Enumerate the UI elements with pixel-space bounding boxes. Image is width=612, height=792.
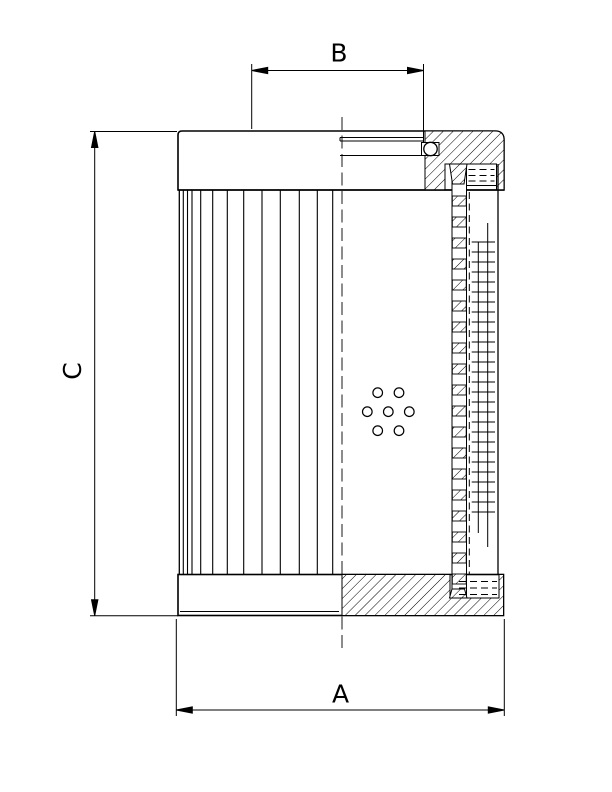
core-hatch-square — [452, 364, 466, 374]
core-hatch-square — [452, 259, 466, 269]
support-core-section — [450, 164, 499, 598]
core-top-anchor — [450, 164, 468, 184]
dimension-a-label: A — [332, 680, 349, 709]
core-hatch-square — [452, 553, 466, 563]
mesh-rungs — [472, 242, 495, 512]
perforation-hole — [394, 388, 404, 398]
core-hatch-square — [452, 532, 466, 542]
o-ring-icon — [424, 142, 437, 155]
core-hatch-square — [452, 322, 466, 332]
technical-drawing-page: B C A — [0, 0, 612, 792]
perforated-core-strip — [452, 164, 467, 596]
dim-b-arrow-right — [408, 67, 424, 73]
core-bottom-anchor — [450, 589, 468, 598]
dimension-c: C — [58, 132, 178, 616]
dimension-b: B — [252, 39, 424, 143]
core-hatch-square — [452, 301, 466, 311]
core-hatch-square — [452, 217, 466, 227]
dim-c-arrow-top — [92, 132, 98, 148]
core-hatch-square — [452, 427, 466, 437]
core-hatch-square — [452, 448, 466, 458]
perforation-hole — [384, 407, 394, 417]
dimension-c-label: C — [58, 362, 87, 379]
filter-element-drawing: B C A — [0, 0, 612, 792]
dim-c-arrow-bottom — [92, 600, 98, 616]
perforation-holes — [363, 388, 415, 436]
core-hatch-square — [452, 490, 466, 500]
pleated-filter-media — [179, 191, 332, 575]
top-media-bond — [467, 164, 497, 186]
dim-b-arrow-left — [252, 67, 268, 73]
core-hatch-square — [452, 238, 466, 248]
wire-mesh — [472, 164, 498, 575]
core-hatch-square — [452, 280, 466, 290]
perforation-hole — [373, 388, 383, 398]
perforation-hole — [363, 407, 373, 417]
perforation-hole — [373, 426, 383, 436]
perforation-hole — [405, 407, 415, 417]
dimension-a: A — [176, 619, 504, 716]
core-hatch-square — [452, 406, 466, 416]
core-hatch-square — [452, 574, 466, 584]
o-ring-seal — [422, 142, 440, 155]
core-hatch-square — [452, 469, 466, 479]
core-hatch-square — [452, 511, 466, 521]
perforation-hole — [394, 426, 404, 436]
dim-a-arrow-left — [176, 707, 192, 713]
dimension-b-label: B — [330, 39, 347, 68]
core-hatch-square — [452, 385, 466, 395]
core-hatch-square — [452, 196, 466, 206]
core-hatch-square — [452, 343, 466, 353]
dim-a-arrow-right — [488, 707, 504, 713]
